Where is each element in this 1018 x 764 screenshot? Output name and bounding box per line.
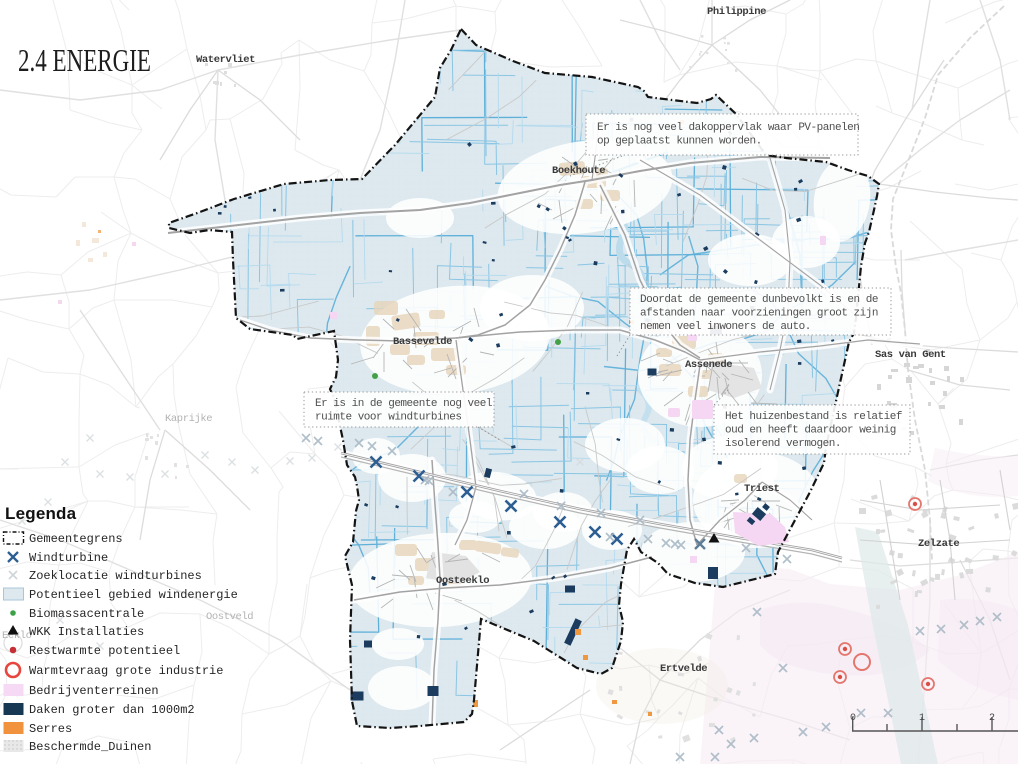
svg-text:Windturbine: Windturbine bbox=[29, 551, 108, 565]
svg-text:Gemeentegrens: Gemeentegrens bbox=[29, 532, 123, 546]
svg-text:2.4 ENERGIE: 2.4 ENERGIE bbox=[18, 42, 151, 78]
svg-text:Assenede: Assenede bbox=[685, 359, 732, 371]
svg-text:Ertvelde: Ertvelde bbox=[660, 663, 707, 675]
svg-text:Oosteeklo: Oosteeklo bbox=[436, 575, 489, 587]
svg-text:Biomassacentrale: Biomassacentrale bbox=[29, 607, 144, 621]
svg-text:Oostveld: Oostveld bbox=[206, 611, 253, 623]
svg-text:Triest: Triest bbox=[744, 483, 780, 495]
svg-text:Warmtevraag grote industrie: Warmtevraag grote industrie bbox=[29, 664, 223, 678]
svg-text:Philippine: Philippine bbox=[707, 6, 766, 18]
svg-text:isolerend vermogen.: isolerend vermogen. bbox=[725, 438, 841, 450]
svg-text:Daken groter dan 1000m2: Daken groter dan 1000m2 bbox=[29, 703, 195, 717]
svg-text:0: 0 bbox=[850, 713, 856, 724]
svg-text:Boekhoute: Boekhoute bbox=[552, 165, 605, 177]
svg-text:Restwarmte potentieel: Restwarmte potentieel bbox=[29, 644, 180, 658]
svg-text:Kaprijke: Kaprijke bbox=[165, 413, 212, 425]
svg-text:Watervliet: Watervliet bbox=[196, 54, 255, 66]
svg-text:oud en heeft daardoor weinig: oud en heeft daardoor weinig bbox=[725, 425, 896, 437]
svg-text:Potentieel gebied windenergie: Potentieel gebied windenergie bbox=[29, 588, 238, 602]
svg-text:op geplaatst kunnen worden.: op geplaatst kunnen worden. bbox=[597, 136, 762, 148]
svg-text:Sas van Gent: Sas van Gent bbox=[875, 349, 946, 361]
svg-text:Er is in de gemeente nog veel: Er is in de gemeente nog veel bbox=[315, 398, 492, 410]
svg-text:1: 1 bbox=[919, 713, 925, 724]
svg-text:nemen veel inwoners de auto.: nemen veel inwoners de auto. bbox=[640, 321, 811, 333]
svg-text:Doordat de gemeente dunbevolkt: Doordat de gemeente dunbevolkt is en de bbox=[640, 294, 878, 306]
svg-text:WKK Installaties: WKK Installaties bbox=[29, 625, 144, 639]
svg-text:Legenda: Legenda bbox=[5, 504, 77, 523]
svg-text:ruimte voor windturbines: ruimte voor windturbines bbox=[315, 412, 461, 424]
svg-text:Zoeklocatie windturbines: Zoeklocatie windturbines bbox=[29, 569, 202, 583]
svg-text:Het huizenbestand is relatief: Het huizenbestand is relatief bbox=[725, 411, 902, 423]
svg-text:afstanden naar voorzieningen g: afstanden naar voorzieningen groot zijn bbox=[640, 308, 878, 320]
svg-text:Bedrijventerreinen: Bedrijventerreinen bbox=[29, 684, 159, 698]
svg-text:Zelzate: Zelzate bbox=[918, 538, 959, 550]
svg-text:Beschermde_Duinen: Beschermde_Duinen bbox=[29, 740, 151, 754]
svg-text:Bassevelde: Bassevelde bbox=[393, 336, 452, 348]
svg-text:Serres: Serres bbox=[29, 722, 72, 736]
svg-text:Er is nog veel dakoppervlak wa: Er is nog veel dakoppervlak waar PV-pane… bbox=[597, 122, 859, 134]
svg-text:2: 2 bbox=[989, 713, 995, 724]
